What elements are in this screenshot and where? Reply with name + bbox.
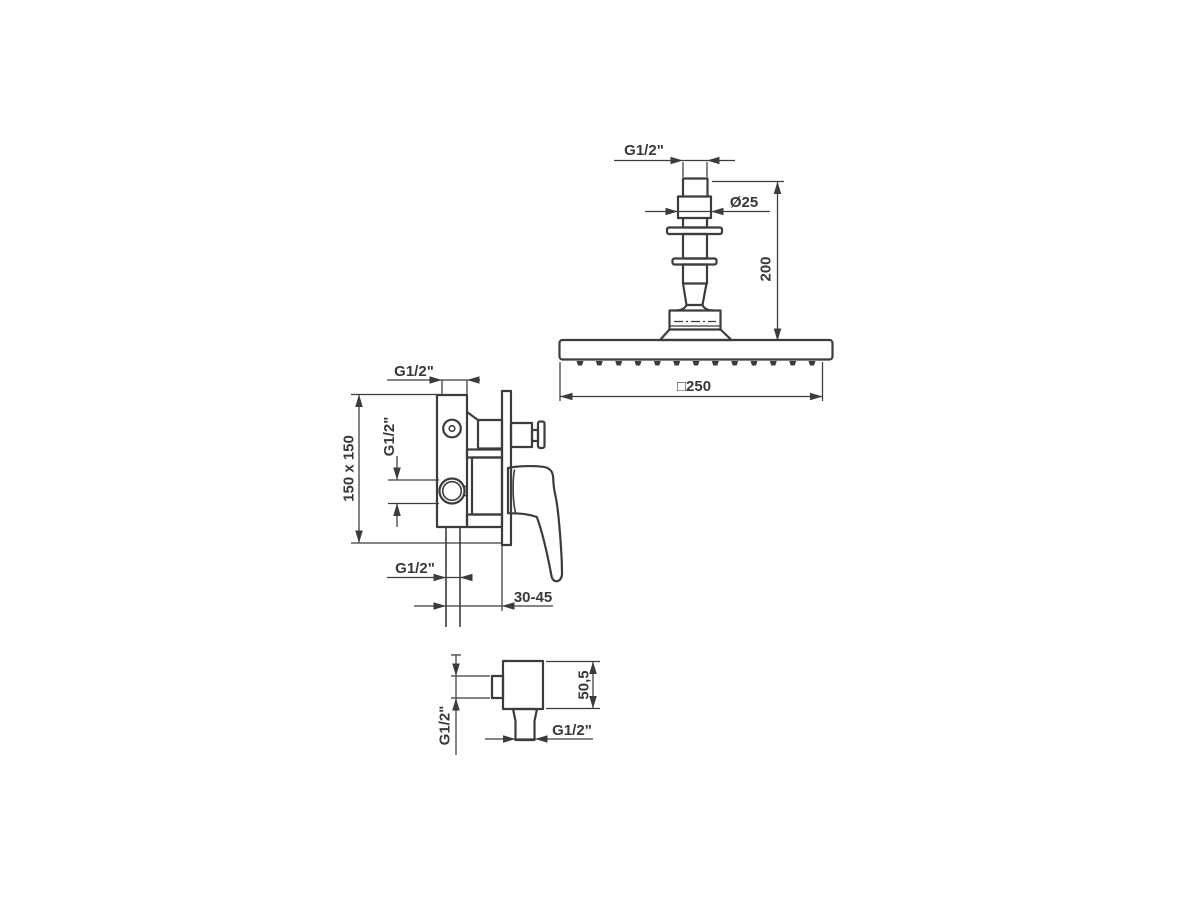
- top-port-circle: [443, 420, 461, 438]
- arrowhead-left-icon: [502, 602, 515, 610]
- arrowhead-left-icon: [560, 393, 573, 401]
- arrowhead-right-icon: [810, 393, 823, 401]
- elbow-inlet-stub: [492, 676, 503, 698]
- arrowhead-up-icon: [393, 504, 401, 517]
- upper-bracket: [467, 450, 502, 458]
- head-hub: [670, 311, 721, 330]
- cartridge-housing: [472, 458, 502, 515]
- dim-label: 200: [758, 256, 775, 281]
- outlet-port-block: [478, 420, 502, 449]
- dim-lines: [388, 456, 439, 527]
- dim-outlet-thread: G1/2": [381, 417, 439, 527]
- elbow-body: [503, 661, 543, 709]
- dimensional-drawing: G1/2" Ø25 200 □250: [0, 0, 1200, 900]
- dim-label: G1/2": [395, 560, 435, 577]
- dim-label: G1/2": [381, 417, 398, 457]
- diverter-base: [511, 423, 532, 447]
- spray-nozzles: [577, 361, 816, 366]
- arrowhead-left-icon: [711, 208, 724, 216]
- dim-label: G1/2": [624, 142, 664, 159]
- dim-label: □250: [677, 378, 711, 395]
- shower-head-plate: [560, 340, 833, 360]
- dim-shower-thread: G1/2": [614, 142, 735, 177]
- arrowhead-up-icon: [355, 395, 363, 408]
- dim-label: 50,5: [576, 670, 593, 699]
- arrowhead-right-icon: [666, 208, 679, 216]
- arrowhead-down-icon: [355, 531, 363, 544]
- outlet-port-inner: [443, 482, 462, 501]
- mixer-body: [437, 395, 467, 527]
- dim-plate-size: 150 x 150: [341, 395, 502, 544]
- dim-lines: [351, 395, 501, 544]
- head-cone: [660, 330, 732, 341]
- concealed-mixer-view: G1/2" 150 x 150 G1/2" G1/2": [341, 363, 563, 627]
- arrowhead-left-icon: [707, 157, 720, 165]
- arrowhead-down-icon: [452, 664, 460, 677]
- elbow-outlet-stub: [513, 709, 537, 740]
- dim-label: G1/2": [394, 363, 434, 380]
- dim-elbow-outlet-thread: G1/2": [485, 722, 593, 743]
- dim-elbow-height: 50,5: [546, 662, 600, 709]
- dim-label: 150 x 150: [341, 435, 358, 502]
- arm-flange: [667, 228, 722, 235]
- arrowhead-up-icon: [774, 182, 782, 195]
- arrowhead-right-icon: [434, 574, 447, 582]
- wall-elbow-view: G1/2" 50,5 G1/2": [437, 655, 601, 755]
- arrowhead-right-icon: [434, 602, 447, 610]
- diverter-knob: [538, 422, 545, 449]
- dim-label: 30-45: [514, 589, 552, 606]
- dim-head-width: □250: [560, 362, 823, 401]
- drawing-page: G1/2" Ø25 200 □250: [0, 0, 1200, 900]
- arrowhead-right-icon: [503, 735, 516, 743]
- dim-label: G1/2": [552, 722, 592, 739]
- top-port-center: [449, 426, 455, 432]
- arrowhead-left-icon: [467, 376, 480, 384]
- arrowhead-right-icon: [671, 157, 684, 165]
- arrowhead-left-icon: [460, 574, 473, 582]
- mixer-lever-handle: [508, 466, 562, 581]
- shower-arm: [678, 179, 711, 306]
- arrowhead-down-icon: [393, 468, 401, 481]
- lower-bracket: [467, 515, 502, 528]
- dim-label: G1/2": [437, 706, 454, 746]
- overhead-shower-view: G1/2" Ø25 200 □250: [560, 142, 833, 401]
- dim-mixer-top-thread: G1/2": [387, 363, 480, 394]
- dim-label: Ø25: [730, 194, 758, 211]
- arm-ring: [673, 259, 717, 265]
- dim-elbow-inlet-thread: G1/2": [437, 655, 491, 755]
- arrowhead-left-icon: [535, 735, 548, 743]
- mixer-body-chamfer: [467, 412, 478, 420]
- handle-base-contour: [513, 470, 515, 513]
